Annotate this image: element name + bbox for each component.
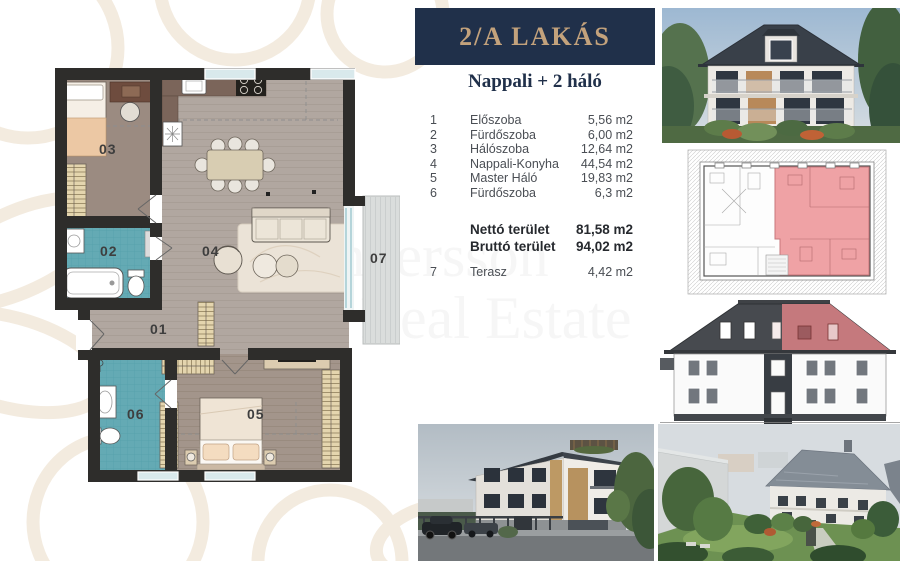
table-row: 6 Fürdőszoba 6,3 m2 [430, 186, 633, 201]
room-number: 1 [430, 113, 470, 128]
table-row: 5 Master Háló 19,83 m2 [430, 171, 633, 186]
photo-building-garden [658, 424, 900, 561]
room-name: Master Háló [470, 171, 581, 186]
net-area-value: 81,58 m2 [576, 221, 633, 239]
room-label-06: 06 [127, 406, 145, 422]
table-row: 4 Nappali-Konyha 44,54 m2 [430, 157, 633, 172]
area-table: 1 Előszoba 5,56 m2 2 Fürdőszoba 6,00 m2 … [430, 113, 633, 279]
gross-area-row: Bruttó terület 94,02 m2 [430, 238, 633, 256]
photo-building-front [662, 8, 900, 143]
room-number: 4 [430, 157, 470, 172]
room-name: Előszoba [470, 113, 588, 128]
table-row: 2 Fürdőszoba 6,00 m2 [430, 128, 633, 143]
room-area: 6,3 m2 [595, 186, 633, 201]
room-area: 6,00 m2 [588, 128, 633, 143]
room-area: 4,42 m2 [588, 265, 633, 280]
gross-area-value: 94,02 m2 [576, 238, 633, 256]
room-label-04: 04 [202, 243, 220, 259]
room-label-07: 07 [370, 250, 388, 266]
table-row: 3 Hálószoba 12,64 m2 [430, 142, 633, 157]
room-number: 7 [430, 265, 470, 280]
hall-wardrobe [198, 302, 214, 346]
table-row: 1 Előszoba 5,56 m2 [430, 113, 633, 128]
desk-chair [121, 103, 140, 122]
toilet [128, 276, 144, 296]
room-area: 19,83 m2 [581, 171, 633, 186]
gross-area-label: Bruttó terület [470, 238, 576, 256]
room-area: 12,64 m2 [581, 142, 633, 157]
floor-plan-svg [50, 62, 400, 482]
unit-subtitle: Nappali + 2 háló [415, 71, 655, 93]
unit-location-plan [680, 147, 895, 300]
net-area-label: Nettó terület [470, 221, 576, 239]
toilet [100, 428, 120, 444]
terrace-row: 7 Terasz 4,42 m2 [430, 265, 633, 280]
room-area: 5,56 m2 [588, 113, 633, 128]
net-area-row: Nettó terület 81,58 m2 [430, 221, 633, 239]
unit-header: 2/A LAKÁS [415, 8, 655, 65]
room-name: Terasz [470, 265, 588, 280]
room-label-05: 05 [247, 406, 265, 422]
building-elevation [660, 300, 900, 425]
room-area: 44,54 m2 [581, 157, 633, 172]
photo-building-street [418, 424, 654, 561]
unit-title: 2/A LAKÁS [459, 22, 611, 52]
room-name: Nappali-Konyha [470, 157, 581, 172]
room-name: Hálószoba [470, 142, 581, 157]
room-number: 6 [430, 186, 470, 201]
entry-door [76, 320, 92, 350]
room-number: 5 [430, 171, 470, 186]
room-name: Fürdőszoba [470, 186, 595, 201]
room-label-03: 03 [99, 141, 117, 157]
room-name: Fürdőszoba [470, 128, 588, 143]
room-number: 2 [430, 128, 470, 143]
room-number: 3 [430, 142, 470, 157]
floor-plan [50, 62, 400, 482]
room-label-01: 01 [150, 321, 168, 337]
room-label-02: 02 [100, 243, 118, 259]
